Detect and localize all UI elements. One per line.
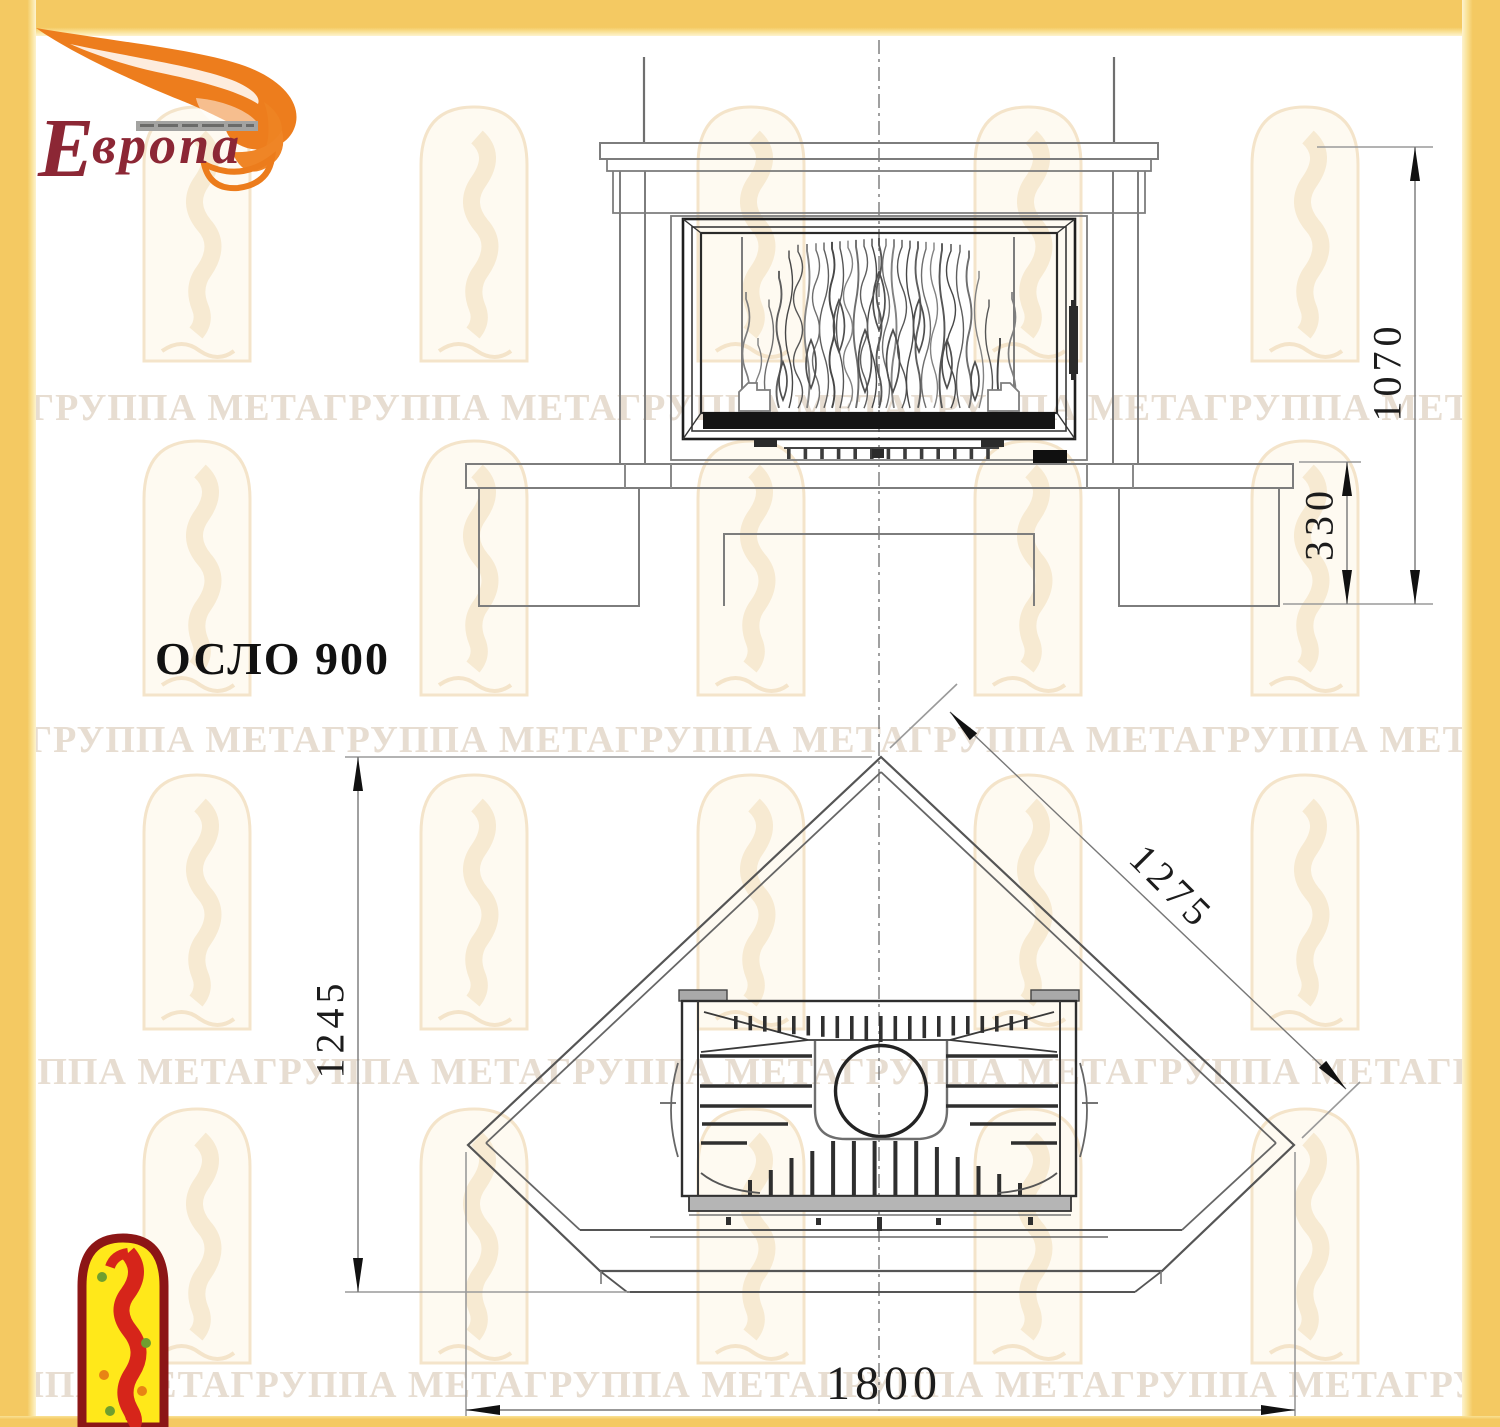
svg-text:Е: Е (37, 102, 94, 195)
